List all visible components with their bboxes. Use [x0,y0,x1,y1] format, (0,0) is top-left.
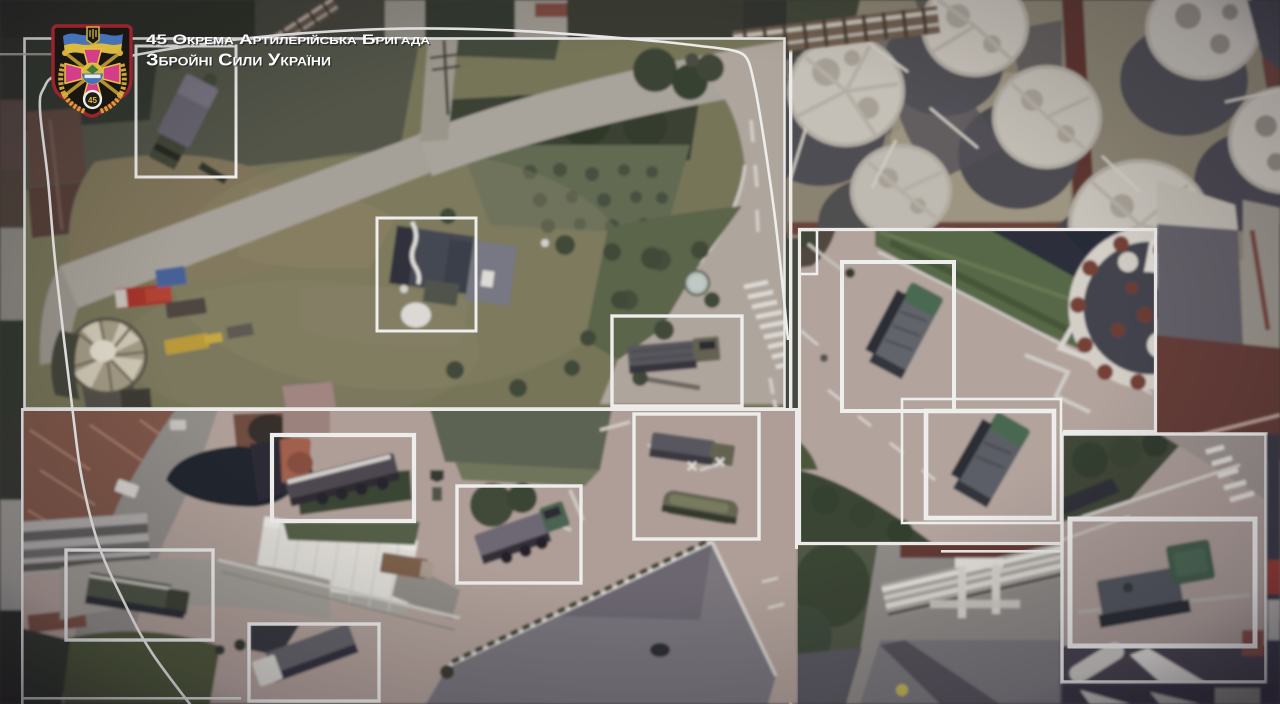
svg-text:45 Окрема Артилерійська Бригад: 45 Окрема Артилерійська Бригада [146,32,430,48]
svg-text:Збройні Сили України: Збройні Сили України [146,49,331,69]
svg-text:45: 45 [88,96,97,105]
